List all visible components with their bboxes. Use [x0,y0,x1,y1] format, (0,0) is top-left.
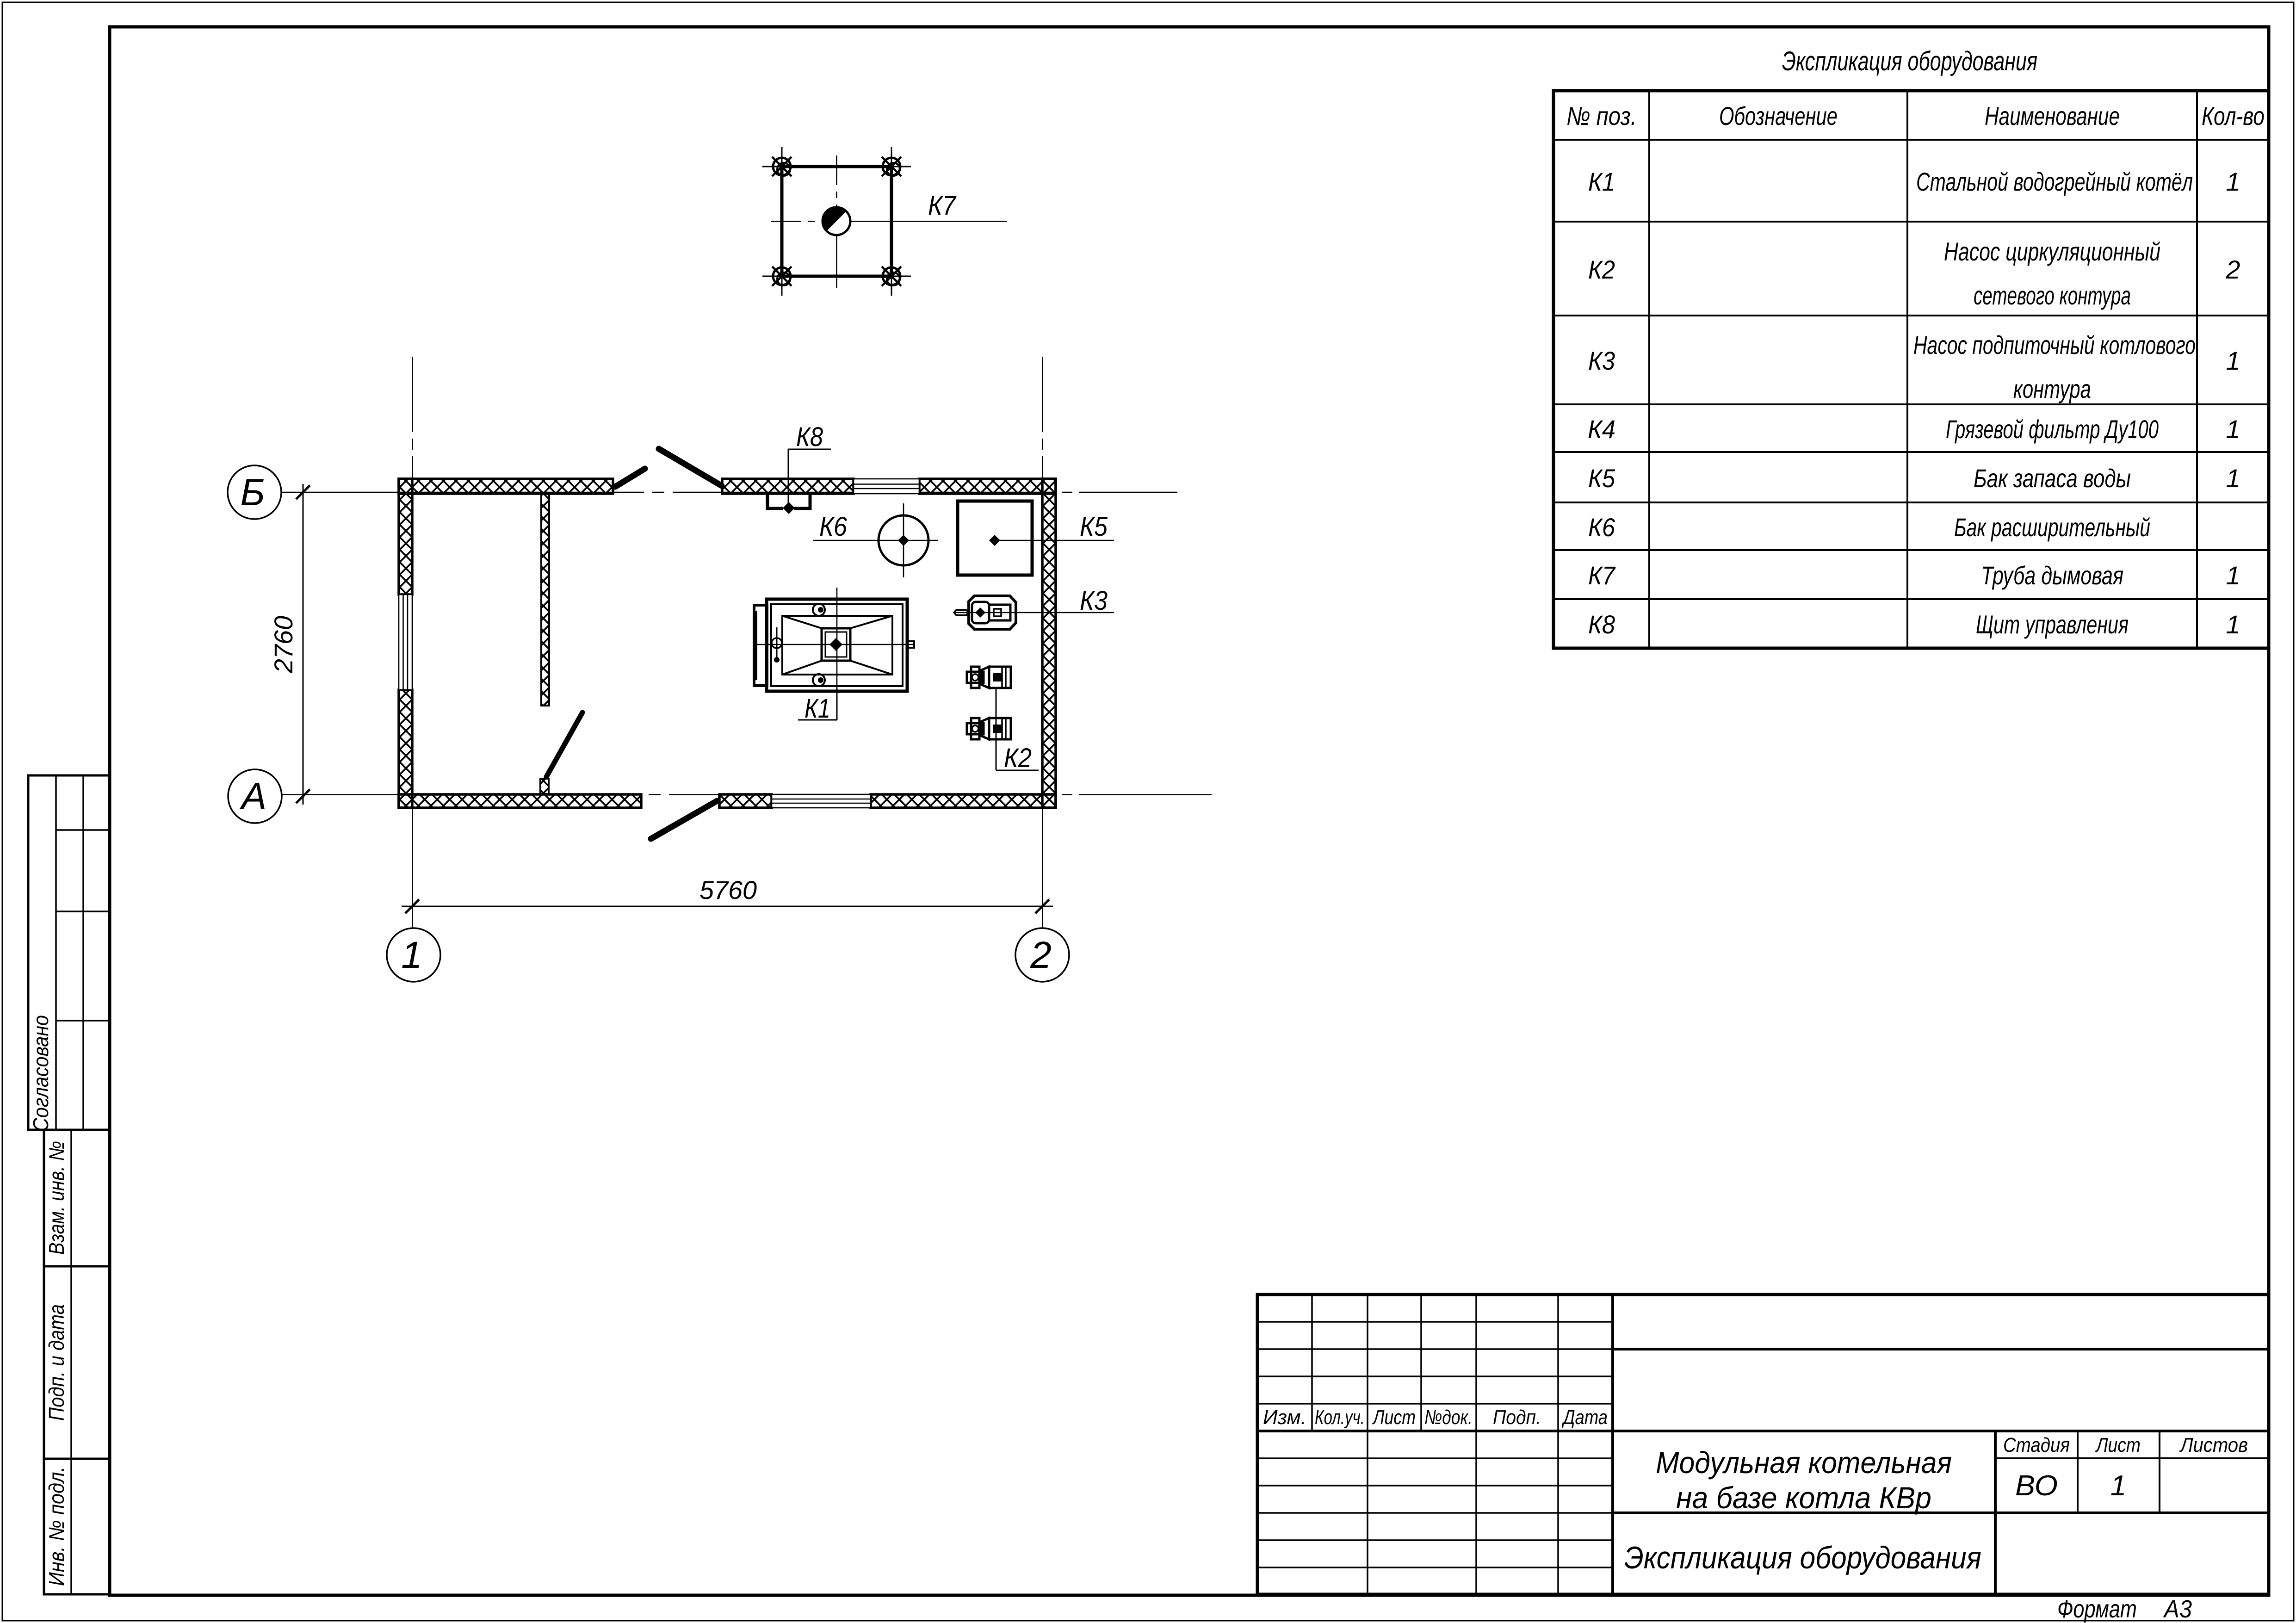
svg-text:К4: К4 [1588,415,1615,444]
svg-text:Взам. инв. №: Взам. инв. № [44,1141,68,1255]
svg-text:Бак расширительный: Бак расширительный [1954,513,2150,542]
svg-text:2: 2 [2225,255,2240,284]
svg-text:К8: К8 [1588,610,1615,639]
svg-text:К7: К7 [1588,561,1616,590]
svg-text:К2: К2 [1588,255,1615,284]
svg-text:№док.: №док. [1424,1406,1473,1429]
svg-text:К1: К1 [805,694,830,724]
svg-text:Дата: Дата [1561,1406,1608,1429]
svg-text:Модульная котельная: Модульная котельная [1656,1445,1952,1480]
svg-text:Насос циркуляционный: Насос циркуляционный [1944,237,2160,266]
svg-text:Стальной водогрейный котёл: Стальной водогрейный котёл [1916,167,2193,196]
svg-text:Согласовано: Согласовано [29,1015,53,1132]
svg-text:5760: 5760 [699,875,757,904]
svg-text:Формат: Формат [2057,1595,2137,1623]
svg-text:А3: А3 [2163,1595,2192,1623]
svg-text:Лист: Лист [2095,1434,2141,1456]
svg-text:Экспликация оборудования: Экспликация оборудования [1782,46,2037,76]
svg-text:1: 1 [2226,464,2240,493]
svg-text:Обозначение: Обозначение [1719,101,1838,130]
svg-text:Бак запаса воды: Бак запаса воды [1974,464,2131,493]
svg-text:Труба дымовая: Труба дымовая [1981,561,2123,590]
svg-text:Насос подпиточный котлового: Насос подпиточный котлового [1913,330,2196,359]
svg-text:№ поз.: № поз. [1566,101,1637,130]
svg-text:1: 1 [2226,346,2240,375]
svg-text:К3: К3 [1080,586,1108,616]
svg-text:Кол.уч.: Кол.уч. [1315,1406,1365,1429]
svg-text:К5: К5 [1080,512,1108,542]
svg-text:ВО: ВО [2015,1470,2058,1502]
svg-text:Экспликация оборудования: Экспликация оборудования [1624,1540,1981,1575]
svg-text:К3: К3 [1588,346,1615,375]
svg-text:Грязевой фильтр Ду100: Грязевой фильтр Ду100 [1946,415,2159,444]
svg-text:1: 1 [2226,167,2240,196]
svg-text:Подп.: Подп. [1493,1406,1541,1429]
svg-text:К1: К1 [1588,167,1615,196]
svg-text:Щит управления: Щит управления [1976,610,2129,639]
svg-text:К6: К6 [819,512,848,542]
svg-text:Инв. № подл.: Инв. № подл. [44,1467,68,1586]
svg-text:1: 1 [2110,1470,2126,1502]
svg-text:2760: 2760 [269,616,298,674]
svg-text:на базе котла КВр: на базе котла КВр [1676,1481,1931,1515]
svg-text:1: 1 [2226,561,2240,590]
svg-text:К7: К7 [928,191,957,221]
svg-text:Изм.: Изм. [1263,1406,1306,1429]
svg-text:Наименование: Наименование [1985,101,2120,130]
svg-text:Лист: Лист [1372,1406,1416,1429]
svg-text:Стадия: Стадия [2003,1434,2070,1456]
svg-text:1: 1 [401,934,422,976]
svg-text:А: А [239,775,267,818]
svg-text:контура: контура [2013,374,2091,403]
svg-text:К8: К8 [796,422,823,452]
svg-text:Кол-во: Кол-во [2202,101,2265,130]
svg-text:К6: К6 [1588,513,1615,542]
svg-text:сетевого контура: сетевого контура [1974,281,2131,310]
svg-text:К5: К5 [1588,464,1615,493]
svg-text:Б: Б [240,471,265,514]
svg-text:2: 2 [1030,934,1052,976]
svg-text:1: 1 [2226,610,2240,639]
svg-text:Подп. и дата: Подп. и дата [44,1304,68,1421]
svg-text:К2: К2 [1004,743,1032,773]
svg-text:1: 1 [2226,415,2240,444]
svg-text:Листов: Листов [2179,1434,2248,1456]
